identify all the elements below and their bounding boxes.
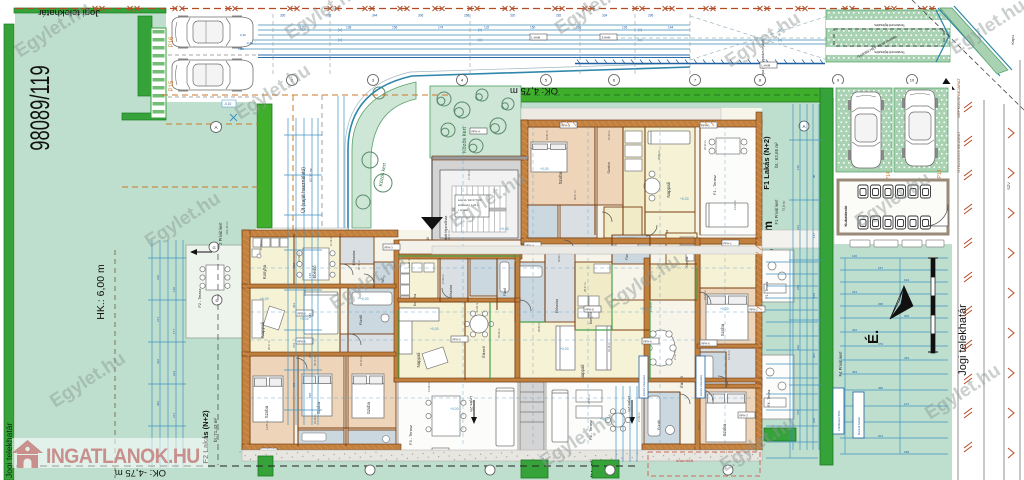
svg-text:210: 210 [156, 275, 160, 280]
svg-text:F2 Privát kert: F2 Privát kert [218, 222, 223, 248]
svg-text:F4 Privát kert: F4 Privát kert [838, 351, 843, 377]
svg-text:132: 132 [484, 26, 490, 30]
svg-text:RFH-1: RFH-1 [724, 242, 733, 246]
svg-text:RFH-8: RFH-8 [586, 308, 595, 312]
svg-text:30.34 m: 30.34 m [703, 141, 707, 150]
svg-text:344: 344 [372, 14, 378, 18]
svg-text:126: 126 [622, 26, 628, 30]
svg-text:Előszoba: Előszoba [352, 251, 356, 266]
svg-text:144: 144 [668, 26, 674, 30]
svg-text:P13: P13 [937, 169, 943, 178]
svg-text:224: 224 [172, 371, 176, 376]
svg-text:23.18 m: 23.18 m [313, 415, 317, 424]
svg-text:Konyha: Konyha [262, 264, 267, 279]
svg-text:É.: É. [865, 330, 882, 344]
svg-text:Lejtés 2%: Lejtés 2% [627, 396, 631, 413]
svg-text:227: 227 [308, 353, 312, 358]
svg-text:Tervbevett fejlesztés: Tervbevett fejlesztés [874, 50, 905, 54]
svg-text:SZV: SZV [1006, 182, 1011, 190]
svg-text:453: 453 [852, 370, 857, 374]
svg-text:21.22 m: 21.22 m [733, 201, 737, 210]
svg-text:319: 319 [796, 345, 800, 350]
svg-text:334: 334 [602, 14, 608, 18]
svg-text:F3 - Terasz: F3 - Terasz [408, 425, 413, 445]
svg-text:Konyha: Konyha [685, 256, 689, 267]
svg-text:302,38 m²: 302,38 m² [225, 221, 229, 235]
svg-text:+0,00: +0,00 [450, 407, 459, 411]
svg-text:bt.:71,43 m²: bt.:71,43 m² [213, 417, 218, 442]
svg-text:27.27 m: 27.27 m [673, 351, 677, 360]
svg-text:98089/119: 98089/119 [24, 65, 54, 150]
svg-text:36.78 m: 36.78 m [357, 261, 361, 270]
svg-text:+0,00: +0,00 [640, 307, 649, 311]
svg-text:27.64 m: 27.64 m [441, 275, 445, 284]
svg-text:-0,44: -0,44 [246, 41, 253, 45]
svg-text:Nappali: Nappali [260, 322, 265, 337]
svg-text:GYALOGOS BEJÁRAT: GYALOGOS BEJÁRAT [956, 131, 961, 173]
svg-text:201: 201 [812, 353, 816, 358]
svg-text:36.97 m: 36.97 m [573, 191, 577, 200]
svg-text:Kapu: Kapu [1010, 35, 1015, 44]
svg-text:194: 194 [904, 278, 909, 282]
svg-text:186: 186 [308, 313, 312, 318]
svg-text:145: 145 [308, 273, 312, 278]
svg-text:Fürdő: Fürdő [359, 315, 363, 325]
svg-text:Nappali: Nappali [580, 365, 585, 380]
svg-text:Előszoba: Előszoba [449, 285, 453, 299]
svg-text:266: 266 [796, 285, 800, 290]
svg-text:Út (saját használatú): Út (saját használatú) [300, 167, 307, 213]
svg-text:Esővíz elvezetés: Esővíz elvezetés [699, 374, 703, 396]
svg-text:332: 332 [156, 359, 160, 364]
svg-text:28.83 m: 28.83 m [657, 151, 661, 160]
svg-text:160: 160 [796, 165, 800, 170]
svg-text:RFH-6: RFH-6 [702, 342, 711, 346]
svg-text:238: 238 [812, 418, 816, 423]
svg-text:230: 230 [292, 263, 296, 268]
svg-text:11.19 m: 11.19 m [329, 237, 333, 246]
svg-text:RFH-3: RFH-3 [385, 246, 394, 250]
svg-text:+0,00: +0,00 [680, 197, 689, 201]
svg-text:Nappali: Nappali [666, 182, 671, 197]
svg-text:P15: P15 [169, 80, 175, 91]
svg-text:G: G [212, 245, 215, 250]
svg-text:P16: P16 [169, 36, 175, 47]
svg-text:27.18 m: 27.18 m [467, 171, 471, 180]
svg-text:268: 268 [878, 302, 883, 306]
svg-text:Szoba: Szoba [366, 401, 371, 414]
svg-text:F1 Privát kert: F1 Privát kert [774, 199, 779, 225]
svg-text:Nappali: Nappali [416, 353, 421, 368]
svg-text:RFH-6: RFH-6 [298, 340, 307, 344]
svg-text:22.16 m: 22.16 m [607, 343, 611, 352]
svg-text:60,30 m²: 60,30 m² [309, 167, 313, 181]
svg-text:157: 157 [878, 266, 883, 270]
svg-text:Előszoba: Előszoba [555, 299, 559, 313]
svg-text:156: 156 [392, 26, 398, 30]
svg-text:Tervbevett fejlesztés: Tervbevett fejlesztés [874, 23, 905, 27]
svg-text:Lejtés 2%: Lejtés 2% [469, 396, 473, 413]
svg-text:Ebédlő: Ebédlő [312, 265, 317, 279]
svg-text:28.17 m: 28.17 m [583, 283, 587, 292]
svg-text:17.15 m: 17.15 m [649, 303, 653, 312]
svg-text:25.97 m: 25.97 m [587, 395, 591, 404]
svg-text:Étkező: Étkező [481, 346, 486, 358]
svg-text:A: A [802, 124, 805, 129]
svg-text:28.17 m: 28.17 m [267, 341, 271, 350]
svg-text:120: 120 [852, 254, 857, 258]
svg-text:OK: 4,75 m: OK: 4,75 m [510, 85, 558, 96]
svg-text:34.50 m: 34.50 m [697, 421, 701, 430]
svg-text:330: 330 [280, 14, 286, 18]
svg-text:174: 174 [438, 26, 444, 30]
svg-text:-0,10: -0,10 [224, 102, 231, 106]
svg-text:Z-HAM: Z-HAM [602, 36, 612, 40]
svg-text:127: 127 [904, 402, 909, 406]
svg-text:28.17 m: 28.17 m [447, 231, 451, 240]
svg-text:90: 90 [812, 174, 816, 178]
svg-text:29.36 m: 29.36 m [497, 329, 501, 338]
svg-text:Szoba: Szoba [264, 405, 269, 418]
svg-text:268: 268 [308, 393, 312, 398]
svg-text:terasz feletti: terasz feletti [676, 459, 693, 463]
svg-text:INGATLANOK.HU: INGATLANOK.HU [46, 444, 200, 468]
svg-text:268: 268 [464, 14, 470, 18]
svg-text:39.74 m: 39.74 m [313, 357, 317, 366]
svg-text:GÉPKOCSI BEJÁRAT: GÉPKOCSI BEJÁRAT [956, 78, 961, 118]
svg-text:201: 201 [878, 434, 883, 438]
svg-text:13.83 m: 13.83 m [711, 395, 715, 404]
svg-text:RFH-1: RFH-1 [702, 124, 711, 128]
svg-text:Szoba: Szoba [558, 171, 563, 184]
svg-text:+0,00: +0,00 [500, 227, 509, 231]
svg-text:13.56 m: 13.56 m [303, 287, 307, 296]
svg-text:150: 150 [530, 26, 536, 30]
svg-text:15.23 m: 15.23 m [607, 131, 611, 140]
svg-text:164: 164 [812, 293, 816, 298]
svg-text:RFH-2: RFH-2 [750, 308, 759, 312]
svg-text:+0,00: +0,00 [720, 307, 729, 311]
svg-text:138: 138 [346, 26, 352, 30]
svg-text:306: 306 [418, 14, 424, 18]
svg-text:Szoba: Szoba [722, 423, 727, 436]
svg-text:Szoba: Szoba [720, 323, 725, 336]
svg-text:Fürdő: Fürdő [657, 420, 661, 429]
svg-text:Fürdő: Fürdő [503, 288, 507, 297]
svg-text:372: 372 [796, 410, 800, 415]
svg-text:L-HAM: L-HAM [532, 36, 541, 40]
svg-text:296: 296 [648, 14, 654, 18]
svg-text:238: 238 [904, 450, 909, 454]
svg-text:19.81 m: 19.81 m [545, 131, 549, 140]
svg-text:27.64 m: 27.64 m [637, 413, 641, 422]
svg-text:bt.: 62,65 m²: bt.: 62,65 m² [774, 142, 779, 168]
svg-text:Konyha: Konyha [589, 312, 593, 324]
svg-text:RFH-5: RFH-5 [453, 338, 462, 342]
svg-text:393: 393 [156, 401, 160, 406]
svg-text:75,8 m²: 75,8 m² [782, 201, 786, 212]
svg-text:F1 - Terasz: F1 - Terasz [765, 281, 769, 298]
svg-text:449: 449 [292, 383, 296, 388]
svg-text:177: 177 [172, 329, 176, 334]
svg-text:305: 305 [904, 314, 909, 318]
svg-text:Zöldfelület 50%: Zöldfelület 50% [837, 410, 841, 431]
svg-text:OK: -4,75 m: OK: -4,75 m [115, 467, 166, 478]
svg-text:+0,00: +0,00 [540, 167, 549, 171]
svg-text:+0,00: +0,00 [430, 327, 439, 331]
svg-text:L-HAM: L-HAM [762, 64, 771, 68]
svg-text:F4 - Terasz: F4 - Terasz [767, 389, 771, 406]
svg-text:Burkolt felület: Burkolt felület [857, 417, 861, 435]
svg-text:213: 213 [796, 225, 800, 230]
svg-text:20.29 m: 20.29 m [259, 241, 263, 250]
svg-text:13.38 m: 13.38 m [427, 383, 431, 392]
svg-text:Szoba: Szoba [606, 162, 611, 174]
svg-text:490: 490 [878, 386, 883, 390]
svg-text:5,00: 5,00 [238, 47, 244, 51]
svg-text:416: 416 [904, 356, 909, 360]
svg-text:RFH-4: RFH-4 [472, 130, 481, 134]
svg-text:303: 303 [292, 303, 296, 308]
svg-text:16.14 m: 16.14 m [359, 357, 363, 366]
svg-text:130: 130 [172, 287, 176, 292]
svg-text:14.79 m: 14.79 m [727, 351, 731, 360]
svg-text:Szoba: Szoba [316, 401, 321, 414]
svg-text:+0,00: +0,00 [260, 297, 269, 301]
svg-text:10: 10 [910, 78, 915, 83]
svg-text:Jogi telekhatár: Jogi telekhatár [957, 304, 969, 376]
svg-text:231: 231 [852, 290, 857, 294]
svg-text:342: 342 [852, 328, 857, 332]
svg-text:F1 Lakás (N+2): F1 Lakás (N+2) [762, 136, 771, 190]
svg-text:11.82 m: 11.82 m [475, 303, 479, 312]
svg-text:RFH-6: RFH-6 [644, 340, 653, 344]
svg-text:127: 127 [812, 233, 816, 238]
svg-text:Esővíz elvezetés: Esővíz elvezetés [642, 374, 646, 396]
svg-text:28.84 m: 28.84 m [537, 323, 541, 332]
svg-text:376: 376 [292, 343, 296, 348]
svg-text:F2 - Terasz: F2 - Terasz [198, 288, 202, 307]
svg-text:19.63 m: 19.63 m [703, 291, 707, 300]
svg-text:271: 271 [156, 317, 160, 322]
svg-text:Kukatároló: Kukatároló [843, 205, 848, 226]
svg-text:HK.: 6,00 m: HK.: 6,00 m [95, 264, 107, 320]
svg-text:+0,00: +0,00 [560, 347, 569, 351]
svg-text:2,30: 2,30 [240, 33, 246, 37]
svg-text:F1 - Terasz: F1 - Terasz [712, 175, 717, 195]
svg-text:320: 320 [510, 14, 516, 18]
svg-text:A: A [214, 125, 217, 130]
svg-text:271: 271 [172, 413, 176, 418]
svg-text:12.65 m: 12.65 m [265, 421, 269, 430]
svg-text:RFH-3: RFH-3 [740, 414, 749, 418]
svg-text:22.93 m: 22.93 m [297, 253, 301, 262]
svg-text:RFB-5: RFB-5 [298, 312, 307, 316]
